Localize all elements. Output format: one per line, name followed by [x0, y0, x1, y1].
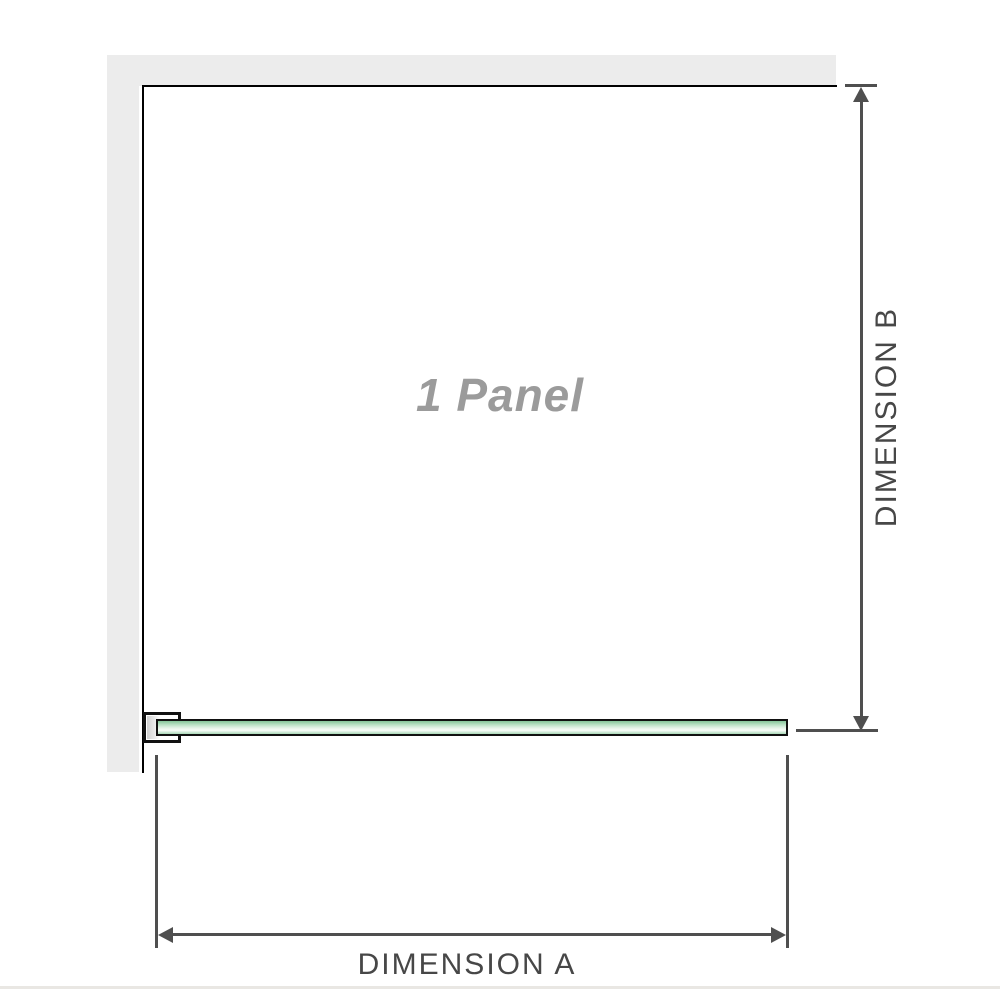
- panel-count-label: 1 Panel: [300, 368, 700, 424]
- dimension-b-label: DIMENSION B: [870, 217, 904, 617]
- glass-panel-bar: [156, 719, 788, 736]
- panel-outline-left: [142, 85, 144, 773]
- dimension-a-label: DIMENSION A: [267, 948, 667, 982]
- wall-left-segment: [107, 55, 139, 772]
- dimension-b-arrowhead-up-icon: [853, 87, 869, 102]
- dimension-a-arrowhead-right-icon: [771, 927, 786, 943]
- dimension-a-extension-right: [786, 755, 789, 948]
- dimension-b-line: [860, 98, 863, 719]
- bottom-divider-line: [0, 986, 1000, 989]
- dimension-a-arrowhead-left-icon: [158, 927, 173, 943]
- panel-outline-top: [142, 85, 837, 87]
- wall-top-segment: [107, 55, 836, 86]
- panel-dimension-diagram: 1 Panel DIMENSION B DIMENSION A: [0, 0, 1000, 1000]
- dimension-a-line: [170, 933, 774, 936]
- dimension-b-arrowhead-down-icon: [853, 716, 869, 731]
- dimension-a-extension-left: [155, 755, 158, 948]
